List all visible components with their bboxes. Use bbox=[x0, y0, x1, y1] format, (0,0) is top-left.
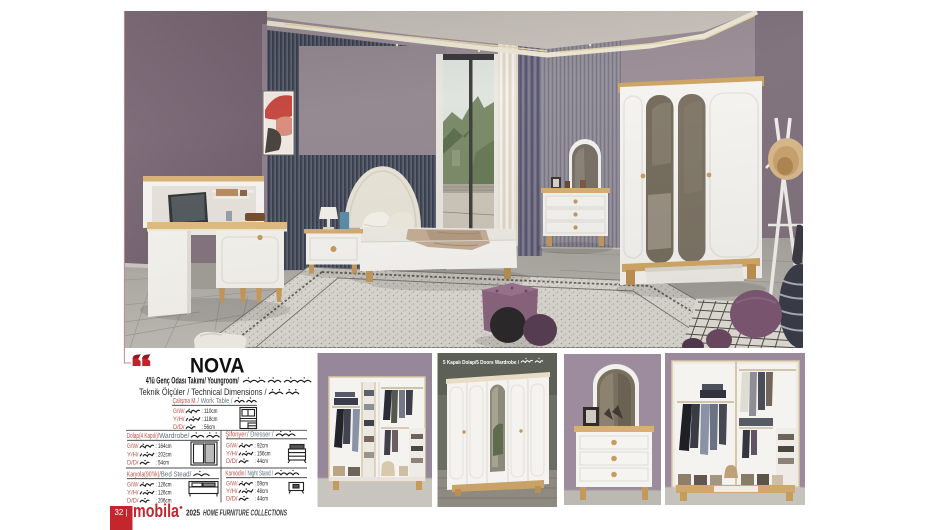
svg-text:4'lü Genç Odası Takımı/ Youngr: 4'lü Genç Odası Takımı/ Youngroom/ bbox=[146, 375, 239, 385]
svg-text:: 44cm: : 44cm bbox=[255, 496, 269, 503]
svg-text:NOVA: NOVA bbox=[190, 354, 245, 377]
svg-text:32 |: 32 | bbox=[115, 508, 128, 517]
svg-text:D/D/: D/D/ bbox=[226, 458, 238, 465]
svg-text:Karyola(90'lık)/: Karyola(90'lık)/ bbox=[127, 472, 161, 479]
svg-text:: 54cm: : 54cm bbox=[156, 460, 170, 467]
svg-text:D/D/: D/D/ bbox=[127, 460, 139, 467]
svg-text:: 156cm: : 156cm bbox=[255, 451, 271, 458]
svg-text:: 164cm: : 164cm bbox=[156, 443, 172, 450]
svg-text:G/W/: G/W/ bbox=[226, 481, 238, 488]
svg-text:/ Night Stand /: / Night Stand / bbox=[245, 471, 273, 478]
svg-text:/ Dresser /: / Dresser / bbox=[247, 432, 274, 439]
svg-text:Çalışma M.: Çalışma M. bbox=[173, 396, 197, 405]
svg-text:Y/H/: Y/H/ bbox=[226, 488, 238, 495]
svg-text:5 Kapalı Dolap/5 Doors Wardrob: 5 Kapalı Dolap/5 Doors Wardrobe / bbox=[443, 360, 519, 366]
svg-text:: 126cm: : 126cm bbox=[156, 482, 172, 489]
svg-text:Dolap(4 Kapılı)/: Dolap(4 Kapılı)/ bbox=[127, 433, 159, 440]
svg-text:: 110cm: : 110cm bbox=[202, 408, 218, 415]
svg-text:G/W/: G/W/ bbox=[127, 482, 139, 489]
svg-text:HOME FURNITURE COLLECTIONS: HOME FURNITURE COLLECTIONS bbox=[203, 508, 287, 517]
svg-text:D/D/: D/D/ bbox=[226, 496, 238, 503]
svg-text:2025: 2025 bbox=[186, 507, 200, 517]
svg-text:Y/H/: Y/H/ bbox=[127, 452, 139, 459]
svg-text:/ Work Table /: / Work Table / bbox=[198, 396, 233, 405]
svg-text:Şifonyer: Şifonyer bbox=[225, 432, 247, 439]
svg-text:G/W/: G/W/ bbox=[127, 443, 139, 450]
svg-text:: 202cm: : 202cm bbox=[156, 452, 172, 459]
svg-text:: 44cm: : 44cm bbox=[255, 458, 269, 465]
svg-text:G/W/: G/W/ bbox=[173, 408, 185, 415]
svg-text:: 48cm: : 48cm bbox=[255, 488, 269, 495]
svg-text:Y/H/: Y/H/ bbox=[226, 451, 238, 458]
svg-text:Y/H/: Y/H/ bbox=[173, 416, 185, 423]
svg-text:Wardrobe/: Wardrobe/ bbox=[159, 433, 189, 440]
svg-text:: 92cm: : 92cm bbox=[255, 443, 269, 450]
svg-text:Y/H/: Y/H/ bbox=[127, 490, 139, 497]
svg-text:: 59cm: : 59cm bbox=[255, 481, 269, 488]
svg-text:: 126cm: : 126cm bbox=[156, 490, 172, 497]
svg-text:: 118cm: : 118cm bbox=[202, 416, 218, 423]
svg-text:G/W/: G/W/ bbox=[226, 443, 238, 450]
svg-text:Bed Stead/: Bed Stead/ bbox=[161, 472, 192, 479]
svg-text:mobila: mobila bbox=[133, 501, 180, 521]
svg-text:Komodin: Komodin bbox=[225, 471, 244, 478]
